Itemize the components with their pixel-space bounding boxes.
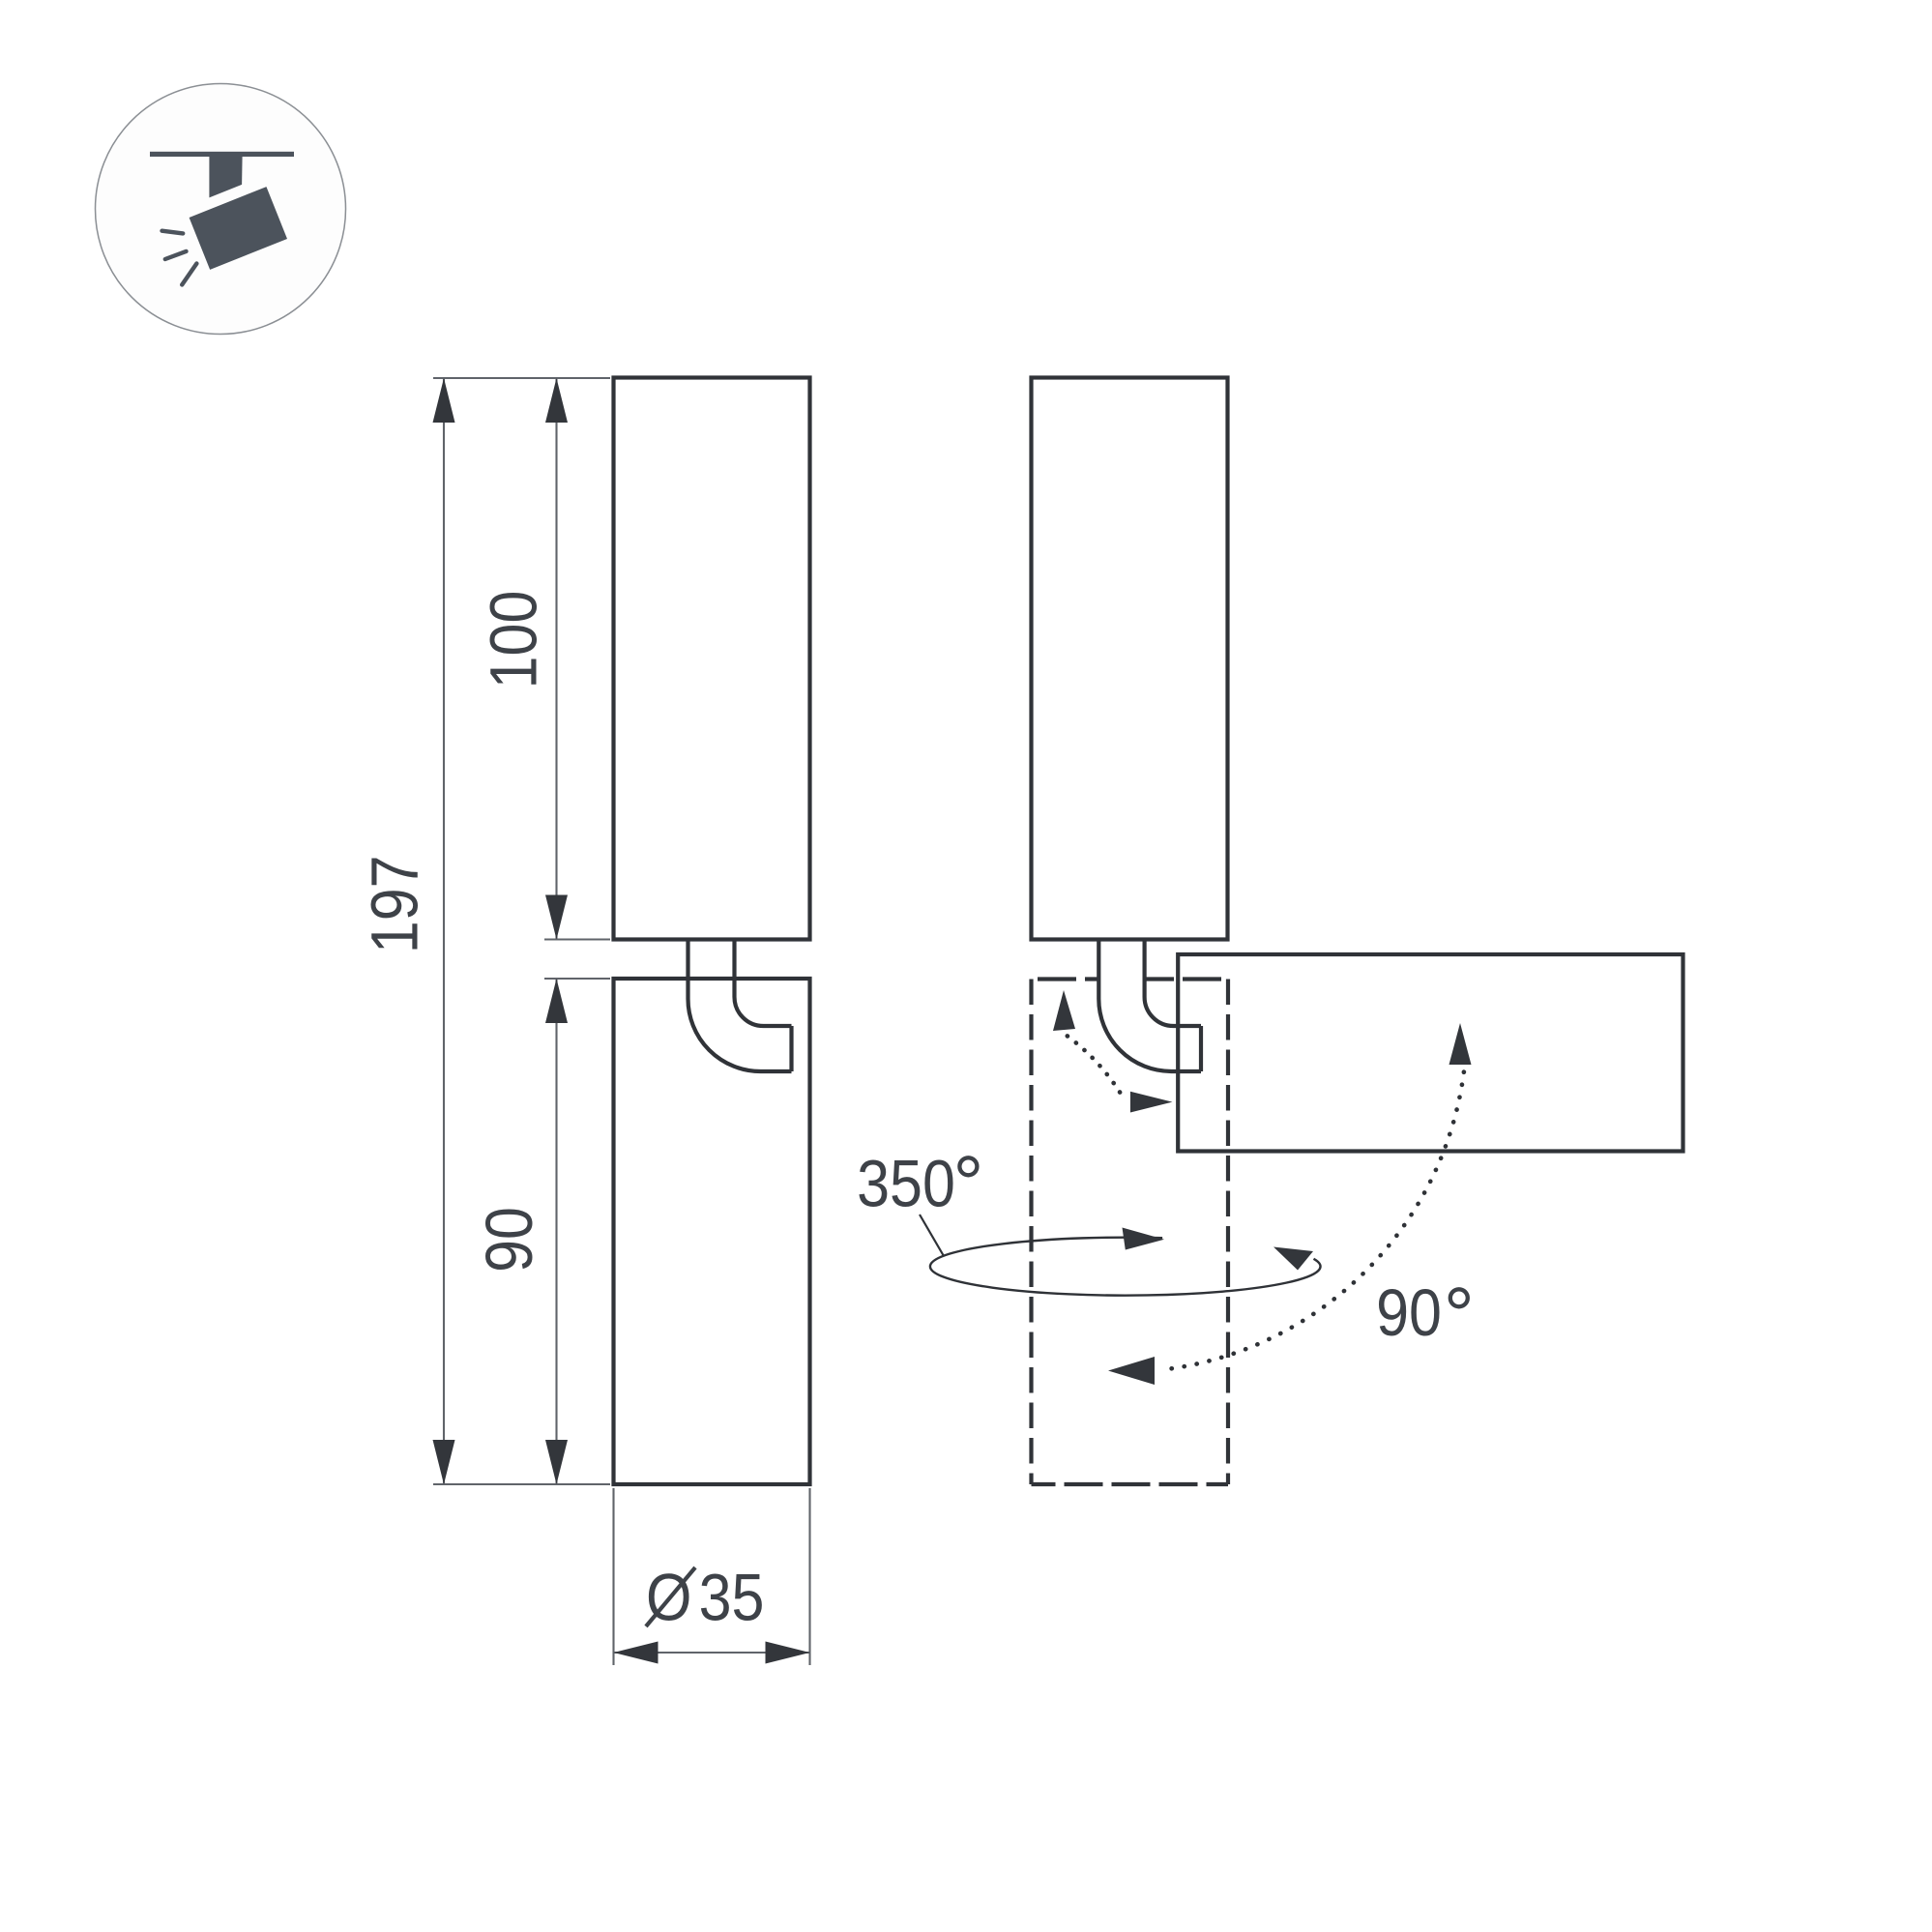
svg-text:90: 90 [1376, 1274, 1442, 1349]
svg-text:100: 100 [476, 591, 550, 689]
svg-text:35: 35 [699, 1560, 765, 1634]
svg-text:90: 90 [471, 1207, 545, 1273]
svg-text:197: 197 [357, 855, 431, 953]
svg-text:350: 350 [857, 1146, 955, 1220]
